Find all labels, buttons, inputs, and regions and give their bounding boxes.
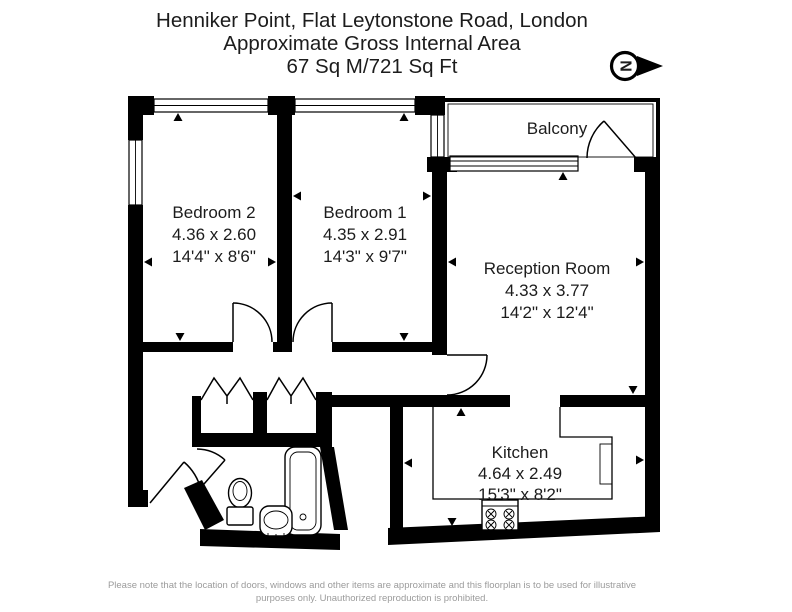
window-bedroom1-top bbox=[295, 99, 415, 112]
room-metric: 4.36 x 2.60 bbox=[172, 225, 256, 244]
door-bedroom1 bbox=[293, 303, 332, 342]
room-name: Reception Room bbox=[484, 259, 611, 278]
room-label-reception: Reception Room 4.33 x 3.77 14'2" x 12'4" bbox=[484, 259, 611, 322]
window-bedroom2-top bbox=[154, 99, 268, 112]
room-label-bedroom2: Bedroom 2 4.36 x 2.60 14'4" x 8'6" bbox=[172, 203, 256, 266]
room-metric: 4.35 x 2.91 bbox=[323, 225, 407, 244]
bathroom-fittings bbox=[227, 447, 321, 538]
room-name: Balcony bbox=[527, 119, 588, 138]
windows bbox=[129, 99, 653, 205]
door-bedroom2 bbox=[233, 303, 272, 342]
page-subtitle-size: 67 Sq M/721 Sq Ft bbox=[287, 55, 458, 78]
hob-icon bbox=[482, 500, 518, 530]
floorplan-canvas: Henniker Point, Flat Leytonstone Road, L… bbox=[0, 0, 792, 612]
room-imperial: 14'2" x 12'4" bbox=[500, 303, 593, 322]
floorplan-page: Henniker Point, Flat Leytonstone Road, L… bbox=[0, 0, 792, 612]
page-subtitle-area: Approximate Gross Internal Area bbox=[223, 32, 521, 55]
disclaimer-line-2: purposes only. Unauthorized reproduction… bbox=[256, 593, 488, 604]
room-name: Kitchen bbox=[492, 443, 549, 462]
room-name: Bedroom 1 bbox=[323, 203, 406, 222]
room-name: Bedroom 2 bbox=[172, 203, 255, 222]
footer-disclaimer: Please note that the location of doors, … bbox=[108, 580, 636, 604]
room-metric: 4.33 x 3.77 bbox=[505, 281, 589, 300]
toilet-icon bbox=[227, 479, 253, 526]
compass-letter: N bbox=[617, 60, 634, 72]
room-imperial: 14'4" x 8'6" bbox=[172, 247, 256, 266]
disclaimer-line-1: Please note that the location of doors, … bbox=[108, 580, 636, 591]
room-label-bedroom1: Bedroom 1 4.35 x 2.91 14'3" x 9'7" bbox=[323, 203, 407, 266]
room-imperial: 15'3" x 8'2" bbox=[478, 485, 562, 504]
room-imperial: 14'3" x 9'7" bbox=[323, 247, 407, 266]
kitchen-sink-unit bbox=[600, 444, 612, 484]
walls bbox=[128, 96, 660, 550]
door-balcony bbox=[587, 121, 636, 158]
title-block: Henniker Point, Flat Leytonstone Road, L… bbox=[156, 9, 588, 78]
room-metric: 4.64 x 2.49 bbox=[478, 464, 562, 483]
window-bedroom2-left bbox=[129, 140, 142, 205]
room-label-kitchen: Kitchen 4.64 x 2.49 15'3" x 8'2" bbox=[478, 443, 562, 504]
page-title: Henniker Point, Flat Leytonstone Road, L… bbox=[156, 9, 588, 32]
door-kitchen bbox=[447, 355, 487, 395]
glazed-door-reception-balcony bbox=[450, 156, 578, 171]
compass-north-icon: N bbox=[612, 53, 664, 80]
sink-icon bbox=[260, 506, 292, 538]
window-balcony-side bbox=[431, 115, 444, 157]
room-label-balcony: Balcony bbox=[527, 119, 588, 138]
